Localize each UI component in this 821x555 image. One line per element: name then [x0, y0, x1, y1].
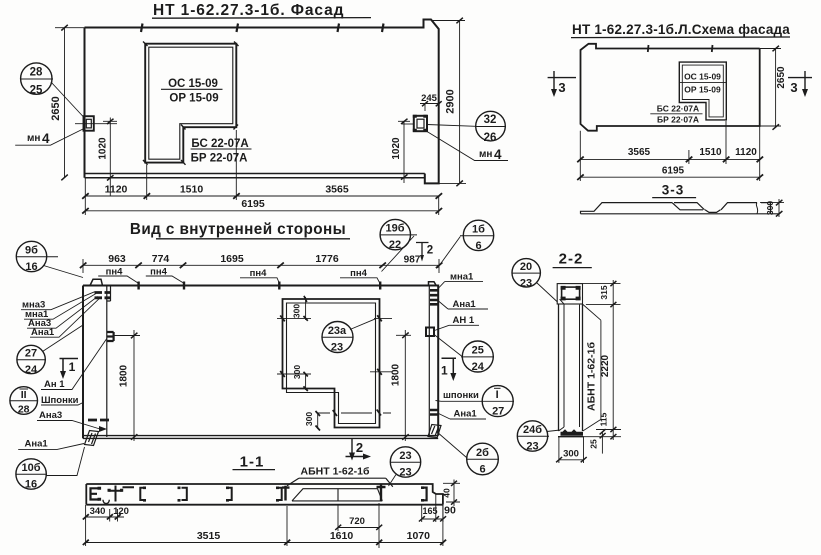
svg-text:774: 774 — [152, 253, 170, 265]
svg-text:1б: 1б — [472, 224, 485, 236]
svg-text:1070: 1070 — [407, 530, 431, 542]
svg-text:16: 16 — [25, 261, 37, 273]
svg-text:1776: 1776 — [315, 253, 339, 265]
svg-text:16: 16 — [25, 479, 37, 491]
svg-text:1510: 1510 — [699, 147, 722, 158]
svg-text:2220: 2220 — [600, 354, 611, 377]
svg-text:БС 22·07А: БС 22·07А — [657, 104, 699, 114]
svg-text:23а: 23а — [328, 325, 347, 337]
svg-text:2650: 2650 — [776, 66, 787, 89]
svg-text:6: 6 — [475, 240, 481, 252]
svg-text:3565: 3565 — [325, 184, 349, 196]
svg-text:27: 27 — [492, 405, 504, 417]
svg-text:1695: 1695 — [220, 253, 244, 265]
svg-text:19б: 19б — [385, 223, 404, 235]
svg-text:Ана1: Ана1 — [31, 327, 55, 338]
svg-text:4: 4 — [42, 131, 50, 146]
svg-text:300: 300 — [292, 365, 302, 379]
svg-text:24: 24 — [25, 364, 38, 376]
svg-text:АН 1: АН 1 — [453, 315, 475, 326]
svg-text:40: 40 — [442, 488, 452, 498]
svg-text:1: 1 — [69, 360, 76, 374]
svg-text:27: 27 — [25, 348, 37, 360]
svg-text:987: 987 — [404, 255, 421, 266]
svg-text:165: 165 — [422, 506, 437, 516]
svg-text:10б: 10б — [21, 462, 40, 474]
svg-text:6: 6 — [479, 464, 485, 476]
svg-text:300: 300 — [304, 412, 314, 426]
svg-text:300: 300 — [765, 201, 775, 215]
svg-text:23: 23 — [399, 467, 411, 479]
svg-text:АБНТ 1-62-1б: АБНТ 1-62-1б — [586, 342, 598, 411]
svg-text:мна1: мна1 — [450, 272, 474, 283]
svg-text:963: 963 — [108, 253, 126, 265]
svg-text:Ана1: Ана1 — [453, 299, 477, 310]
svg-text:2-2: 2-2 — [559, 251, 584, 268]
svg-text:6195: 6195 — [241, 198, 265, 210]
svg-text:1610: 1610 — [330, 530, 354, 542]
svg-text:23: 23 — [520, 277, 532, 289]
svg-text:6195: 6195 — [662, 166, 685, 177]
svg-text:1120: 1120 — [735, 147, 757, 158]
svg-text:28: 28 — [18, 404, 30, 416]
svg-text:мн: мн — [27, 133, 40, 144]
svg-text:4: 4 — [494, 147, 502, 162]
svg-text:II: II — [21, 389, 27, 401]
svg-text:25: 25 — [30, 85, 43, 97]
svg-text:1-1: 1-1 — [240, 454, 265, 471]
svg-text:245: 245 — [421, 93, 438, 104]
svg-text:9б: 9б — [25, 245, 38, 257]
svg-text:25: 25 — [472, 344, 484, 356]
svg-text:2: 2 — [427, 245, 433, 257]
svg-text:23: 23 — [331, 342, 343, 354]
svg-text:мн: мн — [479, 149, 492, 160]
svg-text:АБНТ 1-62-1б: АБНТ 1-62-1б — [301, 466, 370, 478]
svg-text:1800: 1800 — [119, 364, 130, 387]
svg-text:90: 90 — [444, 505, 456, 517]
svg-text:1: 1 — [441, 364, 448, 378]
svg-text:3: 3 — [790, 80, 797, 95]
svg-text:2: 2 — [356, 440, 363, 455]
svg-text:Шпонки: Шпонки — [41, 395, 79, 406]
svg-text:3515: 3515 — [197, 530, 221, 542]
svg-text:БС 22-07А: БС 22-07А — [191, 138, 248, 150]
svg-text:Ан 1: Ан 1 — [44, 379, 65, 390]
svg-text:БР 22·07А: БР 22·07А — [657, 115, 699, 125]
svg-text:300: 300 — [563, 449, 579, 460]
svg-text:23: 23 — [399, 450, 411, 462]
svg-text:115: 115 — [599, 412, 609, 426]
svg-text:22: 22 — [389, 239, 401, 251]
svg-text:1510: 1510 — [180, 184, 204, 196]
svg-text:1800: 1800 — [391, 363, 402, 386]
svg-text:1120: 1120 — [105, 184, 128, 196]
svg-text:Вид с внутренней стороны: Вид с внутренней стороны — [130, 221, 346, 238]
svg-text:3565: 3565 — [628, 147, 651, 158]
svg-text:1020: 1020 — [391, 137, 402, 160]
svg-text:720: 720 — [349, 516, 365, 527]
svg-text:ОР 15-09: ОР 15-09 — [169, 93, 218, 105]
svg-text:ОР 15-09: ОР 15-09 — [684, 85, 721, 95]
svg-text:ОС 15-09: ОС 15-09 — [684, 72, 721, 82]
svg-text:ОС 15-09: ОС 15-09 — [168, 78, 218, 90]
svg-text:32: 32 — [484, 114, 497, 126]
svg-text:Ана3: Ана3 — [39, 410, 62, 421]
svg-text:Ана1: Ана1 — [25, 439, 49, 450]
svg-text:шпонки: шпонки — [443, 390, 479, 401]
svg-text:20: 20 — [520, 261, 532, 273]
svg-text:I: I — [496, 389, 499, 401]
svg-text:24б: 24б — [523, 424, 542, 436]
svg-text:300: 300 — [292, 304, 302, 318]
svg-text:1020: 1020 — [98, 137, 109, 160]
svg-text:2б: 2б — [476, 447, 489, 459]
svg-text:23: 23 — [526, 441, 538, 453]
svg-text:315: 315 — [599, 285, 609, 299]
svg-text:НТ 1-62.27.3-1б.Л.Схема фасада: НТ 1-62.27.3-1б.Л.Схема фасада — [572, 22, 790, 37]
svg-text:24: 24 — [472, 361, 485, 373]
svg-text:25: 25 — [589, 439, 599, 449]
svg-text:НТ 1-62.27.3-1б. Фасад: НТ 1-62.27.3-1б. Фасад — [153, 2, 344, 19]
svg-text:БР 22-07А: БР 22-07А — [191, 153, 248, 165]
svg-text:120: 120 — [113, 506, 129, 517]
svg-text:3: 3 — [558, 80, 565, 95]
svg-text:2900: 2900 — [445, 89, 457, 113]
svg-text:340: 340 — [90, 506, 106, 517]
svg-text:26: 26 — [484, 132, 497, 144]
svg-text:28: 28 — [30, 67, 43, 79]
svg-text:Ана1: Ана1 — [454, 409, 478, 420]
svg-text:2650: 2650 — [50, 96, 62, 120]
svg-text:3-3: 3-3 — [662, 183, 685, 198]
